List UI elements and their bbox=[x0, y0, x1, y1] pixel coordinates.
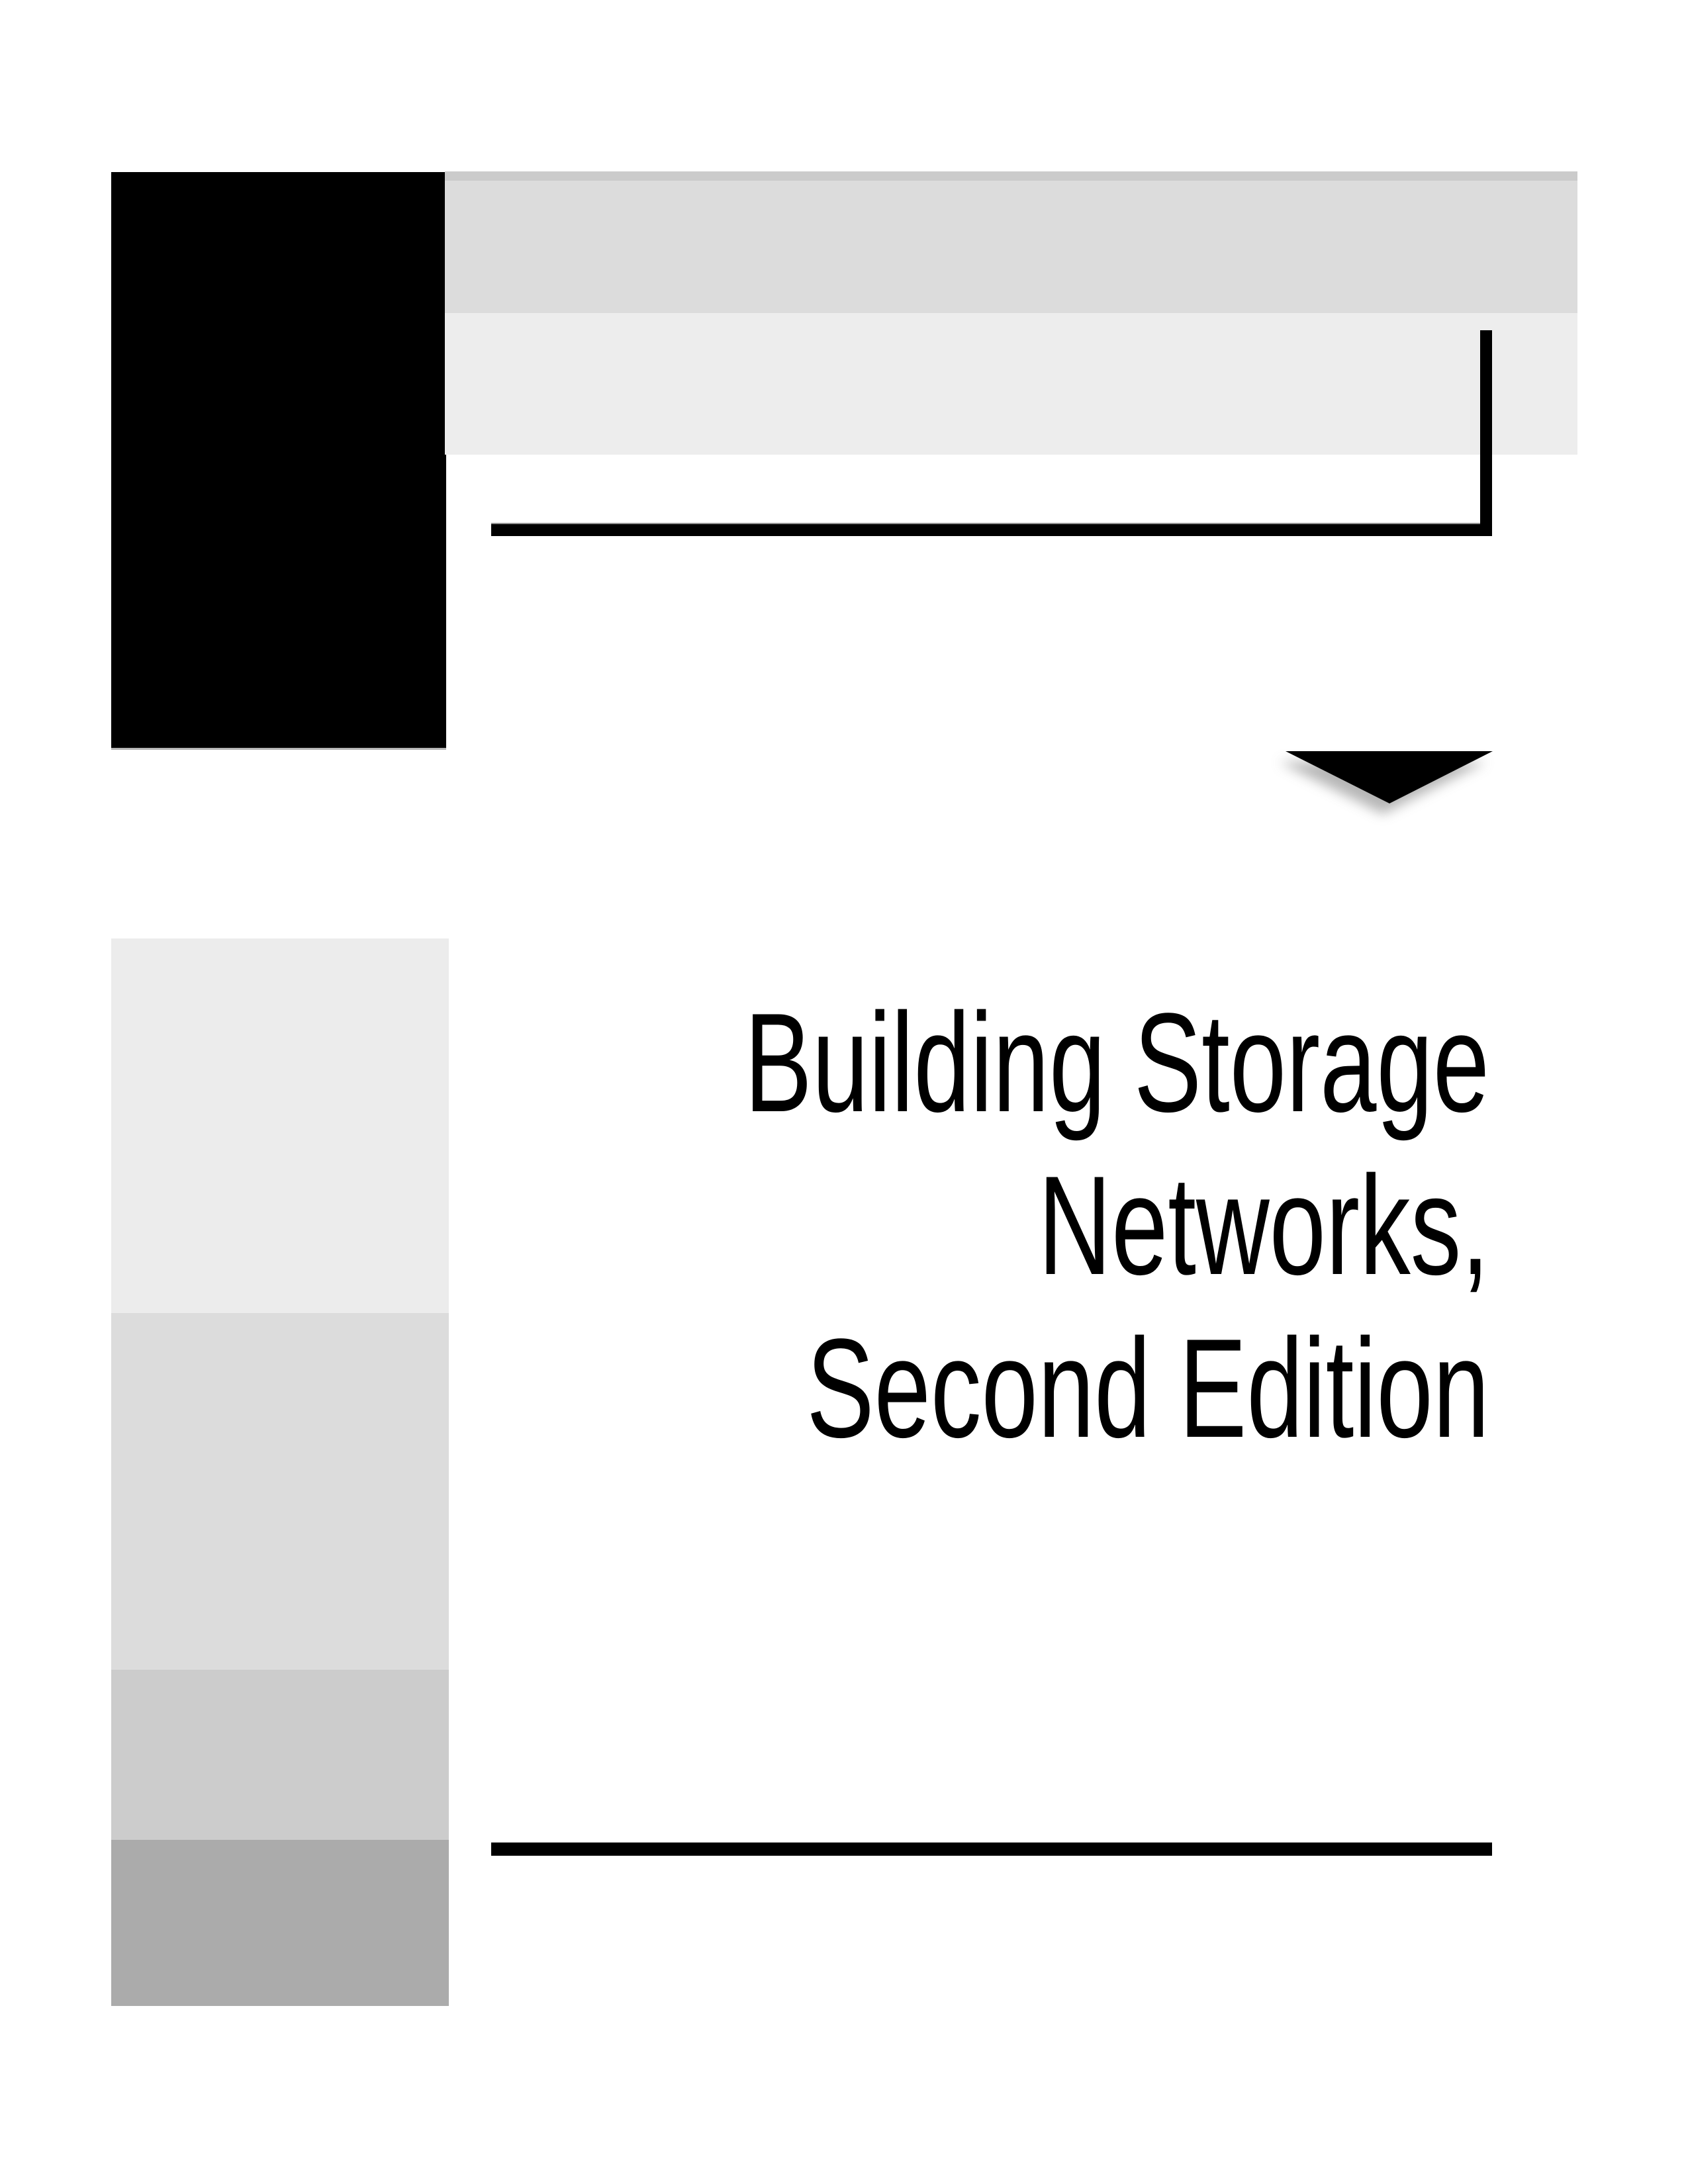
banner-top-strip bbox=[445, 171, 1577, 181]
banner-dark-gray-bar bbox=[445, 181, 1577, 313]
book-title-line-3: Second Edition bbox=[703, 1307, 1489, 1470]
gray-block-1 bbox=[111, 938, 449, 1313]
corner-bracket-horizontal-rule bbox=[491, 524, 1492, 536]
corner-bracket-vertical-rule bbox=[1480, 330, 1492, 536]
book-title: Building Storage Networks, Second Editio… bbox=[703, 981, 1489, 1470]
gray-block-3 bbox=[111, 1670, 449, 1840]
gray-block-2 bbox=[111, 1313, 449, 1670]
down-arrow-icon bbox=[1244, 718, 1562, 850]
cover-black-block bbox=[111, 172, 446, 748]
book-cover-page: Building Storage Networks, Second Editio… bbox=[0, 0, 1688, 2184]
banner-light-gray-bar bbox=[445, 313, 1577, 455]
book-title-line-1: Building Storage bbox=[703, 981, 1489, 1144]
gray-block-4 bbox=[111, 1840, 449, 2006]
footer-rule bbox=[491, 1843, 1492, 1856]
left-gray-block-column bbox=[111, 938, 449, 2006]
book-title-line-2: Networks, bbox=[703, 1144, 1489, 1307]
